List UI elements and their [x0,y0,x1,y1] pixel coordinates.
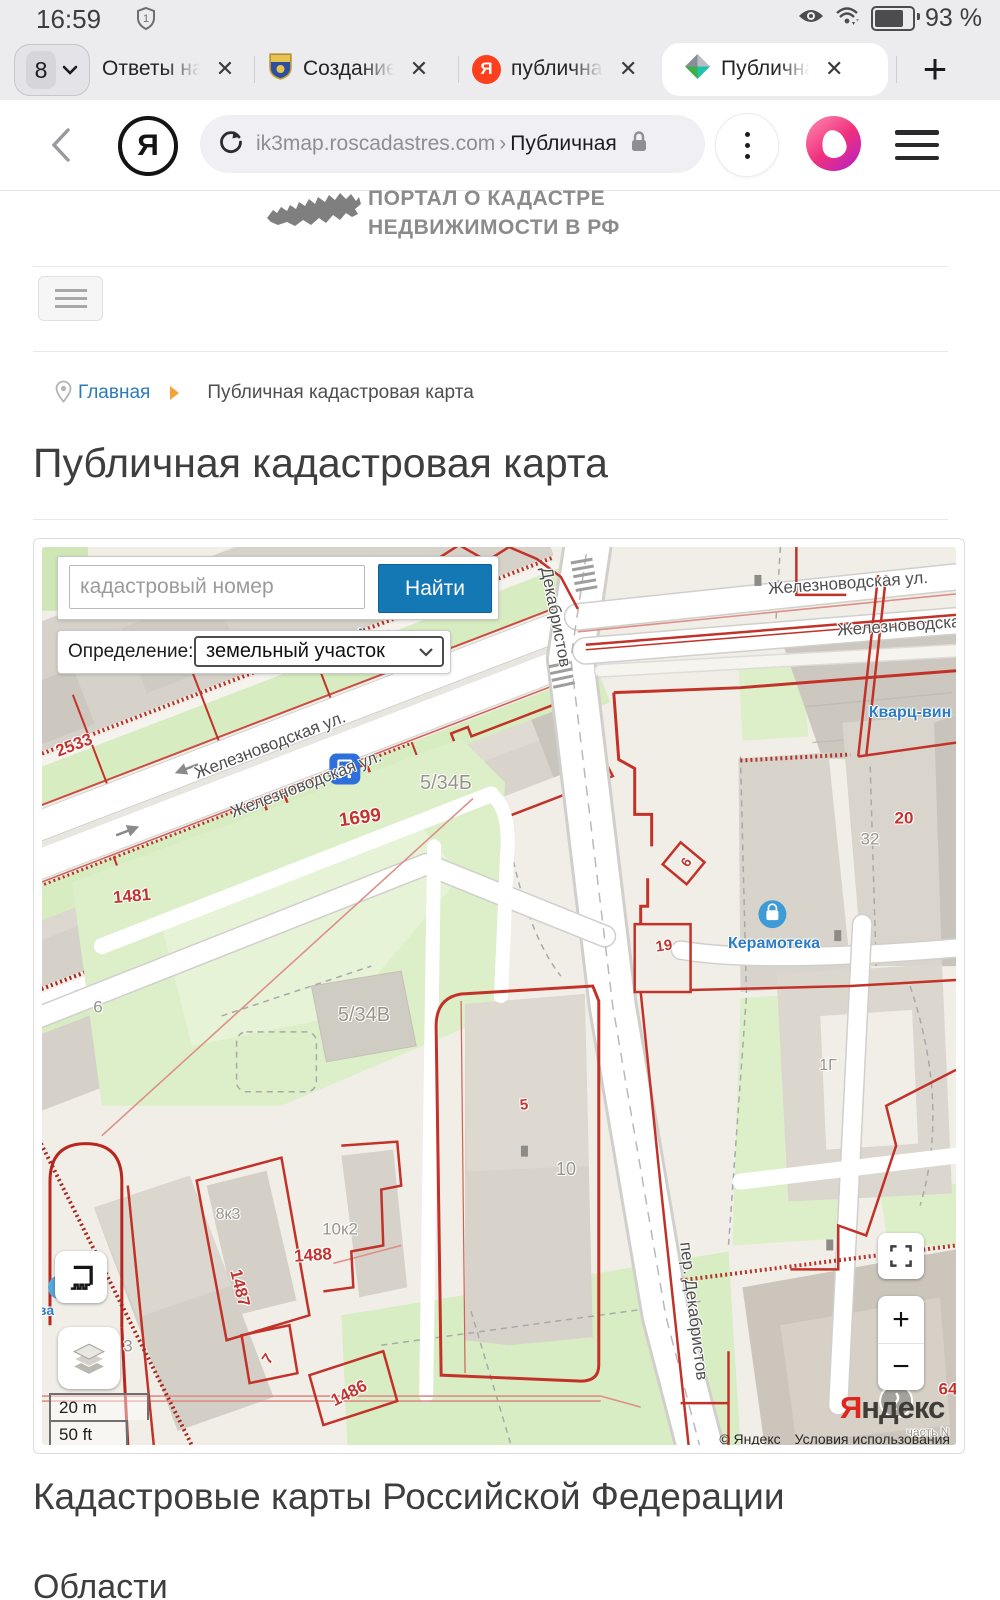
layers-button[interactable] [58,1327,120,1389]
portal-title: ПОРТАЛ О КАДАСТРЕ НЕДВИЖИМОСТИ В РФ [368,184,620,242]
zoom-in-button[interactable]: + [878,1296,924,1344]
building-number: 5/34Б [420,773,472,793]
tab-bar: 8 Ответы на ✕ Создание ✕ Я публичная ✕ П… [0,38,1000,100]
refresh-icon[interactable] [218,129,244,160]
hamburger-menu-button[interactable] [895,126,939,164]
breadcrumb-home-link[interactable]: Главная [78,382,150,404]
tab-yandex-search[interactable]: Я публичная ✕ [472,46,650,92]
map-card: Железноводская ул. Железноводская ул. Же… [33,538,965,1454]
building-number: 1Г [819,1058,837,1074]
map-attribution: © ЯндексУсловия использования [42,1431,950,1445]
tab-count-button[interactable]: 8 [14,44,90,96]
tab-label: Ответы на [102,57,204,81]
breadcrumb: Главная Публичная кадастровая карта [50,378,474,408]
battery-icon [871,6,915,31]
svg-text:1: 1 [143,13,149,25]
new-tab-button[interactable]: + [905,44,965,94]
search-panel: Найти [57,556,499,620]
sim-shield-icon: 1 [135,6,157,37]
yandex-maps-logo: Яндекс [840,1390,944,1426]
close-tab-icon[interactable]: ✕ [617,56,639,82]
browser-menu-dots-button[interactable] [715,113,779,177]
tab-sozdanie[interactable]: Создание ✕ [268,46,448,92]
yandex-icon: Я [472,55,501,84]
tab-separator [254,56,255,83]
building-number: 3 [123,1338,132,1355]
tab-label: Публична [721,57,813,81]
alice-assistant-button[interactable] [806,116,861,171]
clock: 16:59 [36,4,101,35]
lock-icon [629,130,649,159]
map-canvas [42,547,956,1445]
tab-separator [458,56,459,83]
close-tab-icon[interactable]: ✕ [823,56,845,82]
url-text: ik3map.roscadastres.com›Публичная [256,132,617,156]
parcel-number: 1488 [294,1245,333,1265]
parcel-number: 20 [895,810,914,827]
poi-label: Керамотека [728,936,820,952]
tab-count: 8 [26,51,56,89]
pkk-pinwheel-icon [684,53,711,85]
definition-panel: Определение: земельный участок [57,630,451,674]
wifi-icon [835,6,861,31]
poi-label: Кварц-вин [869,705,952,721]
search-button[interactable]: Найти [378,564,492,613]
terms-of-use-link[interactable]: Условия использования [795,1431,950,1445]
keramoteka-poi-icon [758,900,786,928]
chevron-down-icon [62,65,78,75]
tab-active-pkk[interactable]: Публична ✕ [684,46,870,92]
definition-label: Определение: [68,641,193,663]
building-number: 32 [861,831,880,848]
cadastral-map[interactable]: Железноводская ул. Железноводская ул. Же… [42,547,956,1445]
url-field[interactable]: ik3map.roscadastres.com›Публичная [200,115,705,173]
parcel-number: 19 [655,937,674,954]
building-number: 6 [93,999,102,1016]
status-bar: 16:59 1 93 % [0,0,1000,38]
site-menu-button[interactable] [38,276,103,321]
building-number: 10к2 [322,1221,358,1238]
building-number: 5/34В [338,1005,390,1025]
tab-label: Создание [303,57,398,81]
yandex-browser-logo[interactable]: Я [118,116,178,176]
chevron-down-icon [418,647,434,657]
divider [33,266,948,267]
zoom-out-button[interactable]: − [878,1343,924,1390]
browser-window: 16:59 1 93 % 8 Ответы на ✕ [0,0,1000,1600]
tab-label: публичная [511,57,607,81]
page-title: Публичная кадастровая карта [33,440,608,487]
breadcrumb-arrow-icon [170,386,179,400]
close-tab-icon[interactable]: ✕ [214,56,236,82]
close-tab-icon[interactable]: ✕ [408,56,430,82]
breadcrumb-current: Публичная кадастровая карта [207,382,473,404]
eye-icon [797,7,825,30]
battery-percent: 93 % [925,4,982,33]
scale-metric: 20 m [49,1393,149,1420]
building-number: 8к3 [216,1207,241,1223]
measure-tool-button[interactable] [55,1251,107,1303]
back-button[interactable] [48,126,74,164]
section-subheading: Области [33,1568,168,1600]
section-heading: Кадастровые карты Российской Федерации [33,1476,785,1518]
copyright: © Яндекс [719,1431,780,1445]
divider [33,351,948,352]
divider [33,519,948,520]
tab-separator [896,56,897,83]
parcel-number: 5 [519,1097,529,1113]
poi-label: ва [42,1303,54,1317]
zoom-control: + − [878,1296,924,1390]
fullscreen-button[interactable] [878,1233,924,1279]
lsn-shield-icon [268,52,293,86]
cadastral-number-input[interactable] [69,565,365,609]
tab-otvety[interactable]: Ответы на ✕ [102,46,248,92]
address-bar: Я ik3map.roscadastres.com›Публичная [0,100,1000,191]
portal-logo-russia-map [263,183,363,246]
building-number: 10 [556,1160,576,1178]
definition-select[interactable]: земельный участок [194,636,444,667]
parcel-number: 1481 [112,886,151,906]
